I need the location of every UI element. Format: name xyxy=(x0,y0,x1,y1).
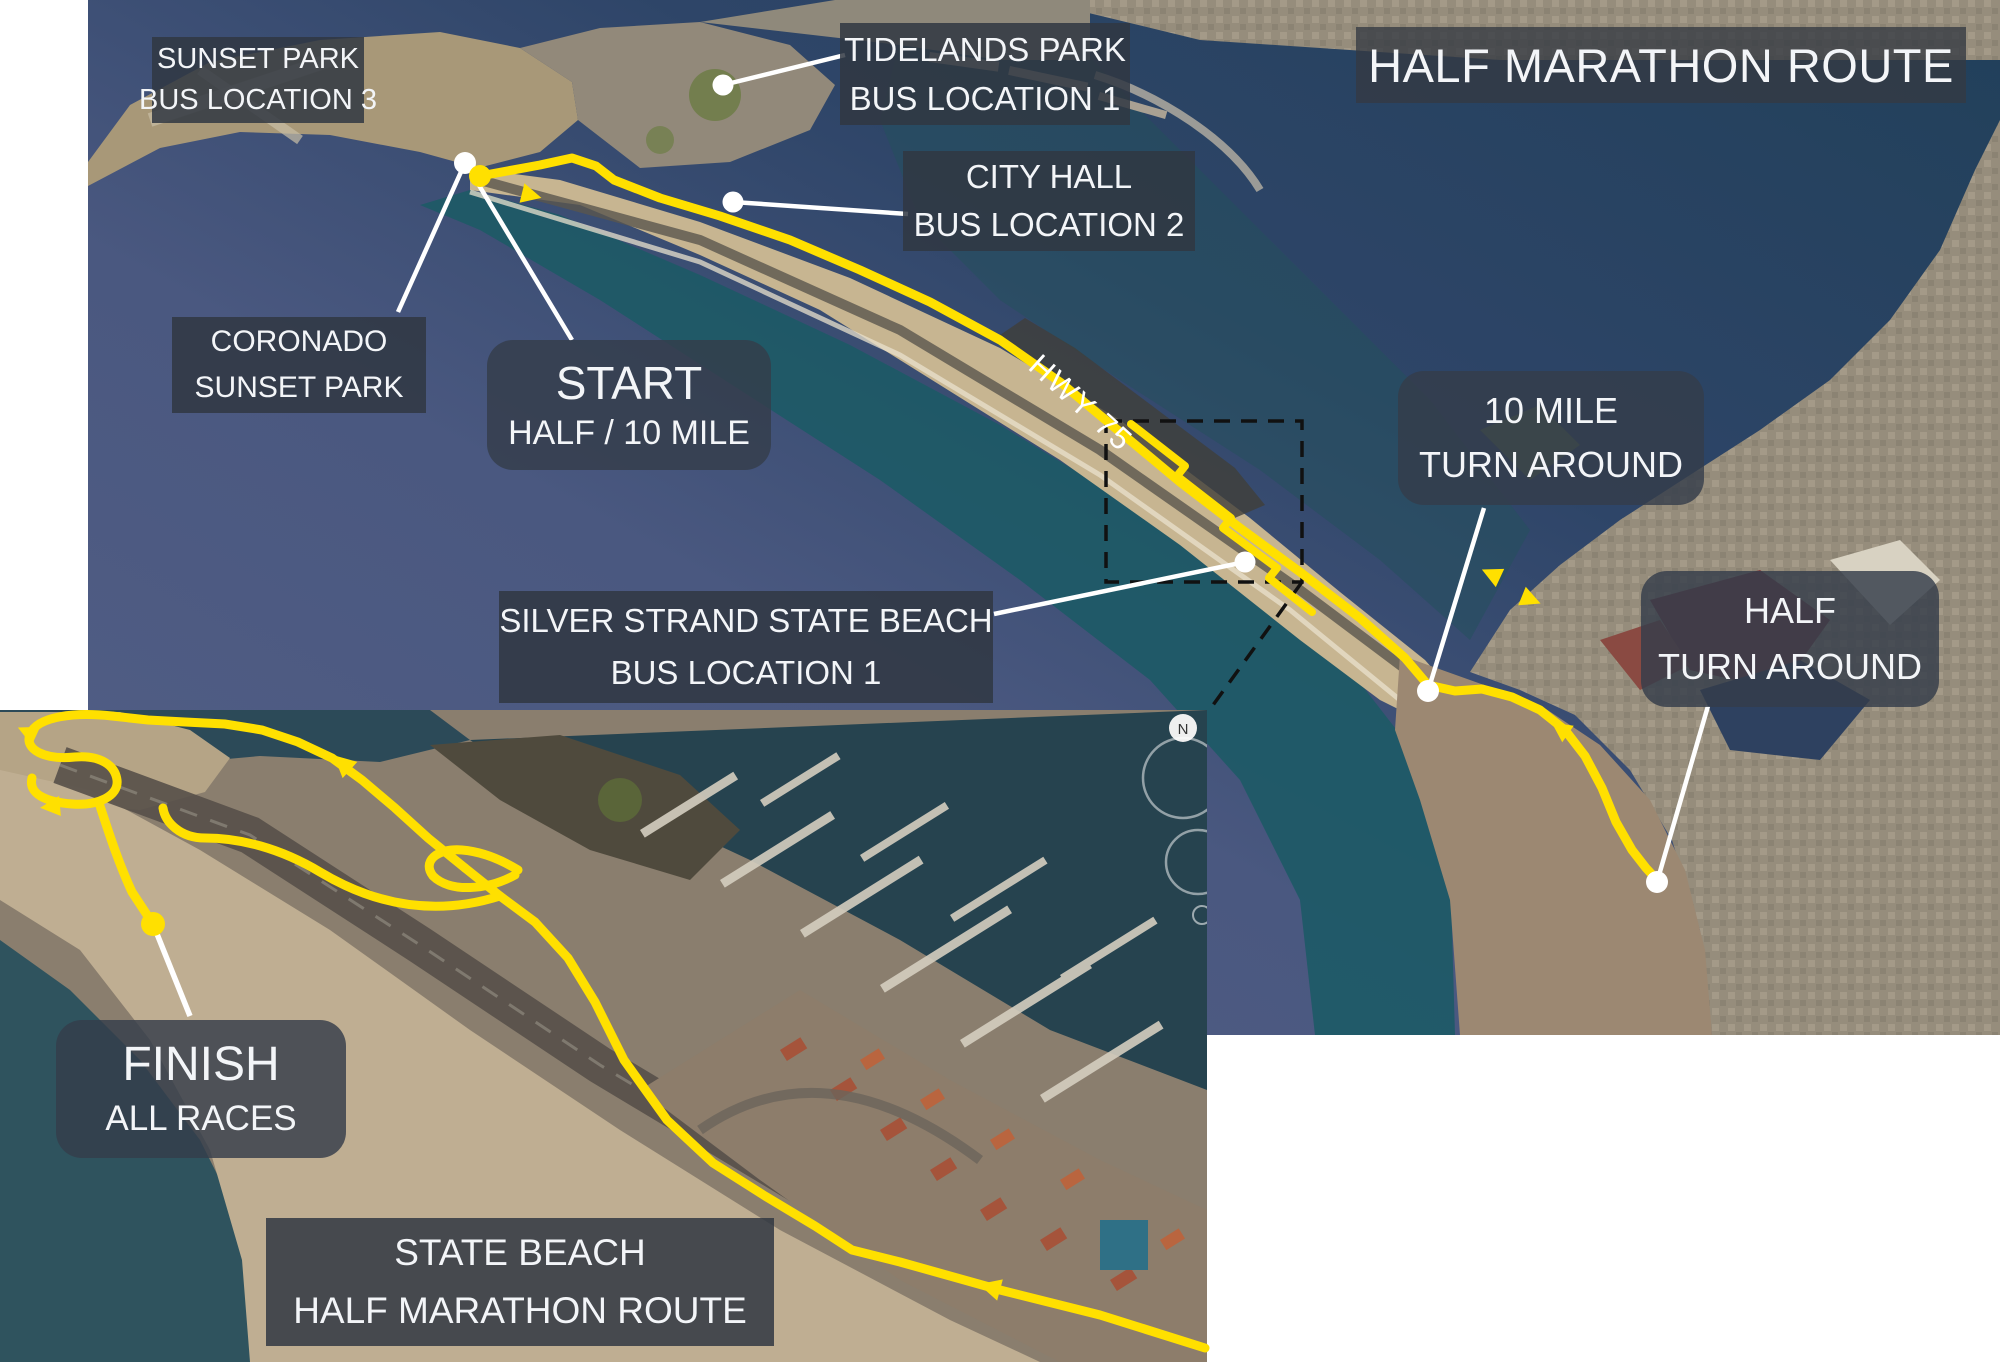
finish-races-text: ALL RACES xyxy=(105,1095,296,1143)
map-title-text: HALF MARATHON ROUTE xyxy=(1368,38,1954,93)
label-line: SILVER STRAND STATE BEACH xyxy=(499,595,992,647)
compass-n-glyph: N xyxy=(1178,721,1189,738)
label-line: TURN AROUND xyxy=(1658,639,1922,695)
label-silver-strand-bus-1: SILVER STRAND STATE BEACH BUS LOCATION 1 xyxy=(499,591,993,703)
route-map-page: N xyxy=(0,0,2000,1362)
label-line: BUS LOCATION 3 xyxy=(139,80,377,121)
label-ten-mile-turnaround: 10 MILE TURN AROUND xyxy=(1398,371,1704,505)
label-line: CITY HALL xyxy=(966,153,1132,201)
label-state-beach-route: STATE BEACH HALF MARATHON ROUTE xyxy=(266,1218,774,1346)
label-line: SUNSET PARK xyxy=(195,365,404,411)
label-line: STATE BEACH xyxy=(394,1224,646,1282)
label-line: TURN AROUND xyxy=(1419,438,1683,492)
label-start: START HALF / 10 MILE xyxy=(487,340,771,470)
label-line: BUS LOCATION 1 xyxy=(850,74,1121,123)
label-line: BUS LOCATION 2 xyxy=(914,201,1185,249)
finish-label-text: FINISH xyxy=(122,1035,279,1095)
label-sunset-park-bus-3: SUNSET PARK BUS LOCATION 3 xyxy=(152,37,364,123)
inset-tennis-courts xyxy=(1100,1220,1148,1270)
label-line: HALF xyxy=(1744,583,1836,639)
label-line: 10 MILE xyxy=(1484,384,1618,438)
label-line: SUNSET PARK xyxy=(157,39,359,80)
start-label-text: START xyxy=(556,355,703,411)
label-line: TIDELANDS PARK xyxy=(844,25,1126,74)
park-green xyxy=(646,126,674,154)
label-line: CORONADO xyxy=(211,319,388,365)
label-coronado-sunset-park: CORONADO SUNSET PARK xyxy=(172,317,426,413)
inset-green xyxy=(598,778,642,822)
label-line: BUS LOCATION 1 xyxy=(611,647,882,699)
label-tidelands-park-bus-1: TIDELANDS PARK BUS LOCATION 1 xyxy=(840,23,1130,125)
label-half-turnaround: HALF TURN AROUND xyxy=(1641,571,1939,707)
start-distances-text: HALF / 10 MILE xyxy=(508,411,750,455)
label-city-hall-bus-2: CITY HALL BUS LOCATION 2 xyxy=(903,151,1195,251)
tidelands-green xyxy=(689,69,741,121)
label-line: HALF MARATHON ROUTE xyxy=(293,1282,747,1340)
label-finish: FINISH ALL RACES xyxy=(56,1020,346,1158)
map-title: HALF MARATHON ROUTE xyxy=(1356,27,1966,103)
